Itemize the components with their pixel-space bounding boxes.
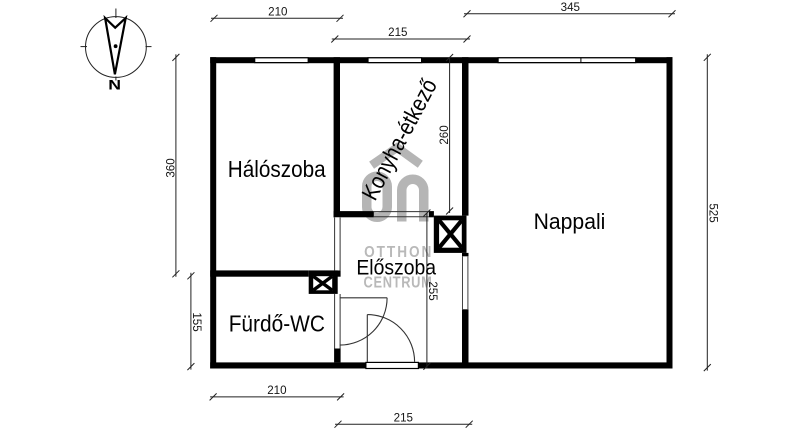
svg-text:N: N xyxy=(108,78,121,93)
svg-text:360: 360 xyxy=(164,158,177,177)
svg-text:Előszoba: Előszoba xyxy=(356,257,436,280)
svg-text:Hálószoba: Hálószoba xyxy=(228,156,327,183)
svg-text:525: 525 xyxy=(706,203,719,222)
svg-text:255: 255 xyxy=(426,281,439,300)
svg-text:Nappali: Nappali xyxy=(534,210,606,234)
svg-text:210: 210 xyxy=(268,6,287,19)
svg-text:215: 215 xyxy=(388,26,407,39)
svg-text:210: 210 xyxy=(267,384,286,397)
svg-text:215: 215 xyxy=(394,411,413,424)
svg-text:260: 260 xyxy=(438,125,451,144)
svg-text:Fürdő-WC: Fürdő-WC xyxy=(229,310,325,336)
svg-text:345: 345 xyxy=(561,1,580,14)
svg-text:155: 155 xyxy=(190,312,203,331)
